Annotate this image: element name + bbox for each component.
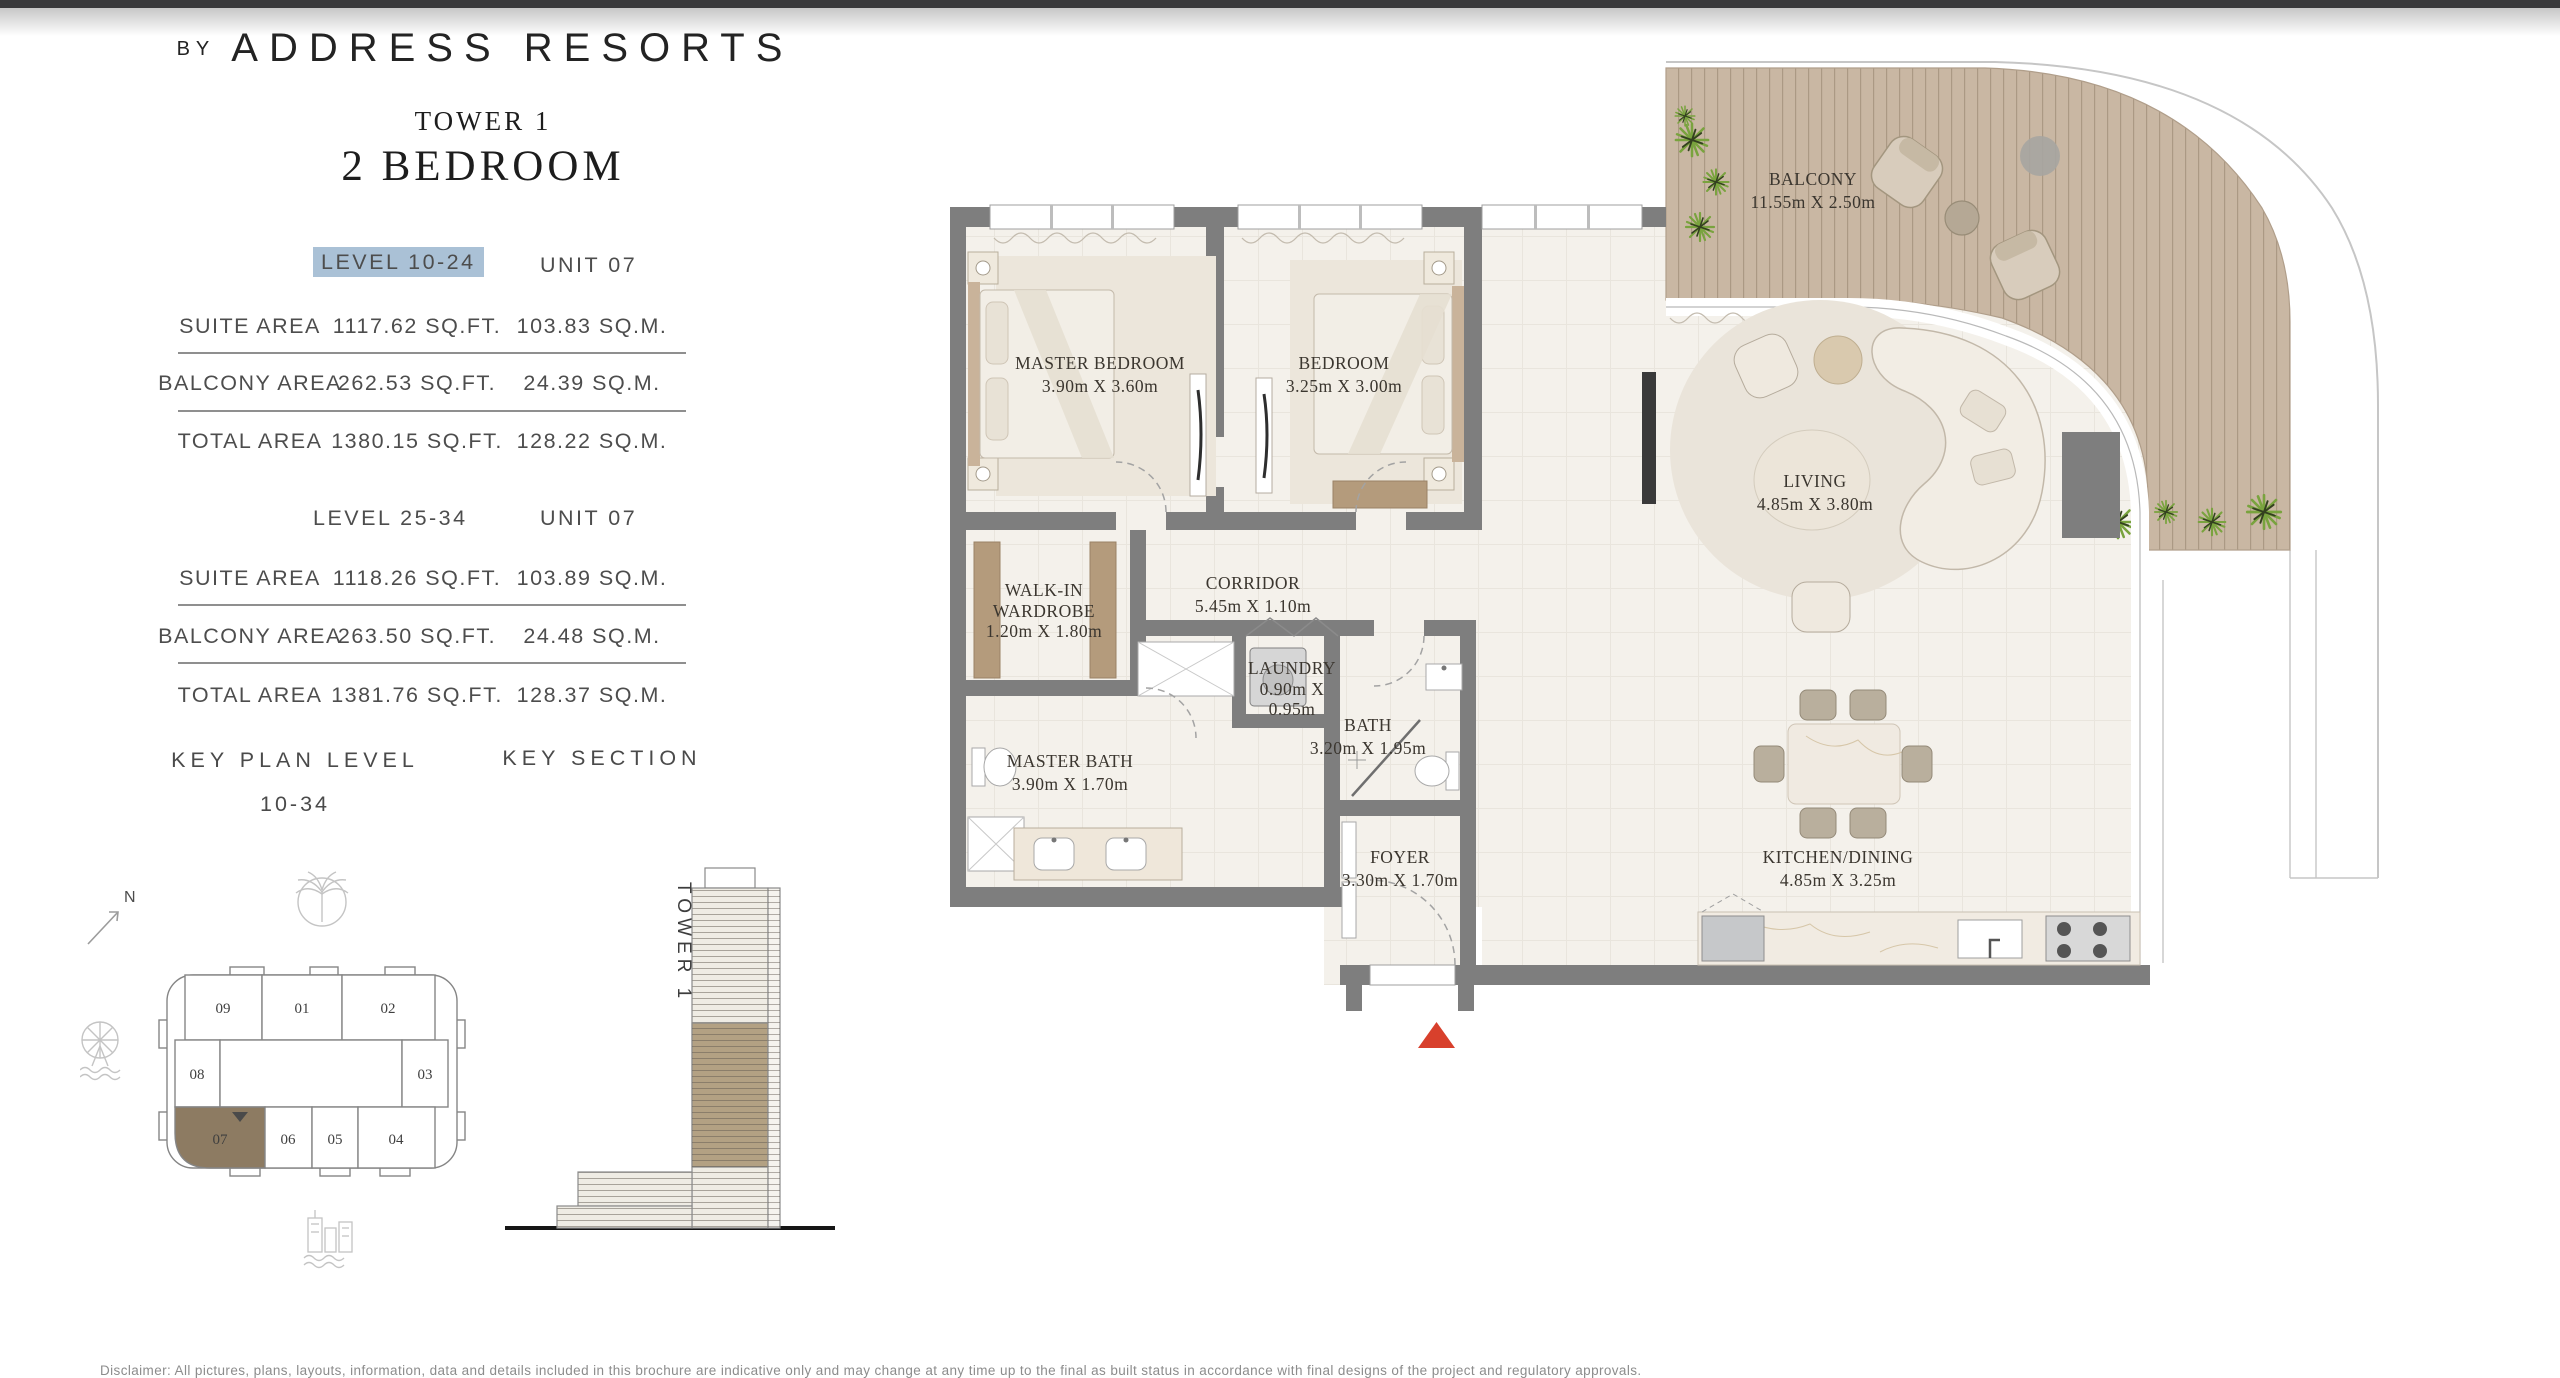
palm-island-icon (296, 872, 348, 926)
unit-number: 02 (381, 1001, 396, 1017)
unit-label: UNIT 07 (540, 253, 636, 278)
area-row-sqft: 262.53 SQ.FT. (322, 371, 512, 396)
key-plan-range: 10-34 (165, 792, 425, 817)
key-section-diagram: TOWER 1 (500, 860, 840, 1250)
fridge (1702, 916, 1764, 961)
unit-label: UNIT 07 (540, 506, 636, 531)
tower-elevation (557, 868, 780, 1228)
center-table (1754, 430, 1870, 530)
area-row-label: BALCONY AREA (155, 624, 345, 649)
unit-number: 08 (190, 1067, 205, 1083)
area-row-sqm: 24.48 SQ.M. (497, 624, 687, 649)
brand-name: ADDRESS RESORTS (231, 26, 793, 70)
area-row-sqm: 128.22 SQ.M. (497, 429, 687, 454)
divider-rule (178, 352, 686, 354)
area-row-sqm: 103.89 SQ.M. (497, 566, 687, 591)
unit-number: 04 (389, 1132, 405, 1148)
entry-threshold (1370, 965, 1455, 985)
level-label: LEVEL 25-34 (313, 506, 437, 531)
pillow (1422, 376, 1444, 434)
coffee-table (1814, 336, 1862, 384)
unit-number: 01 (295, 1001, 310, 1017)
area-row-label: BALCONY AREA (155, 371, 345, 396)
unit-number: 09 (216, 1001, 231, 1017)
key-section-tower-label: TOWER 1 (673, 882, 694, 1003)
city-skyline-icon (304, 1210, 352, 1268)
sink (1034, 838, 1074, 870)
headboard (1452, 286, 1464, 462)
key-plan-title: KEY PLAN LEVEL (165, 748, 425, 773)
area-row-label: SUITE AREA (155, 566, 345, 591)
area-row-label: SUITE AREA (155, 314, 345, 339)
key-section-title: KEY SECTION (472, 746, 732, 771)
tv-console (1642, 372, 1656, 504)
console (1333, 481, 1427, 508)
tower-title: TOWER 1 (180, 106, 786, 137)
master-bedroom-furniture (968, 252, 1216, 496)
divider-rule (178, 604, 686, 606)
level-label: LEVEL 10-24 (313, 250, 437, 275)
divider-rule (178, 410, 686, 412)
level-highlight: LEVEL 10-24 (313, 247, 484, 277)
brochure-page: BYADDRESS RESORTS TOWER 1 2 BEDROOM LEVE… (0, 0, 2560, 1377)
area-row-sqm: 103.83 SQ.M. (497, 314, 687, 339)
area-row-sqm: 128.37 SQ.M. (497, 683, 687, 708)
armchair (1792, 582, 1850, 632)
entrance-marker (1418, 1022, 1455, 1048)
brand-prefix: BY (177, 38, 216, 60)
brand: BYADDRESS RESORTS (150, 26, 820, 71)
planter (2020, 136, 2060, 176)
unit-number: 03 (418, 1067, 433, 1083)
unit-number: 06 (281, 1132, 297, 1148)
area-row-sqft: 1118.26 SQ.FT. (322, 566, 512, 591)
key-plan-diagram: N (80, 870, 480, 1280)
pillow (986, 302, 1008, 364)
area-row-label: TOTAL AREA (155, 429, 345, 454)
area-row-sqm: 24.39 SQ.M. (497, 371, 687, 396)
dining-table (1788, 724, 1900, 804)
unit-type-title: 2 BEDROOM (180, 142, 786, 191)
area-row-sqft: 1381.76 SQ.FT. (322, 683, 512, 708)
sink (1106, 838, 1146, 870)
compass-label: N (124, 889, 136, 906)
floor-plan (950, 60, 2410, 1120)
podium-lower (557, 1206, 692, 1228)
compass-north-icon (88, 912, 118, 944)
unit-number: 07 (213, 1132, 229, 1148)
unit-number: 05 (328, 1132, 343, 1148)
side-table (1945, 201, 1979, 235)
pillow (986, 378, 1008, 440)
ferris-wheel-icon (80, 1022, 120, 1080)
area-row-label: TOTAL AREA (155, 683, 345, 708)
disclaimer-text: Disclaimer: All pictures, plans, layouts… (100, 1363, 2400, 1378)
area-row-sqft: 263.50 SQ.FT. (322, 624, 512, 649)
area-row-sqft: 1117.62 SQ.FT. (322, 314, 512, 339)
divider-rule (178, 662, 686, 664)
top-bar (0, 0, 2560, 8)
podium-upper (578, 1172, 692, 1206)
toilet (972, 748, 985, 786)
headboard (968, 282, 980, 466)
area-row-sqft: 1380.15 SQ.FT. (322, 429, 512, 454)
